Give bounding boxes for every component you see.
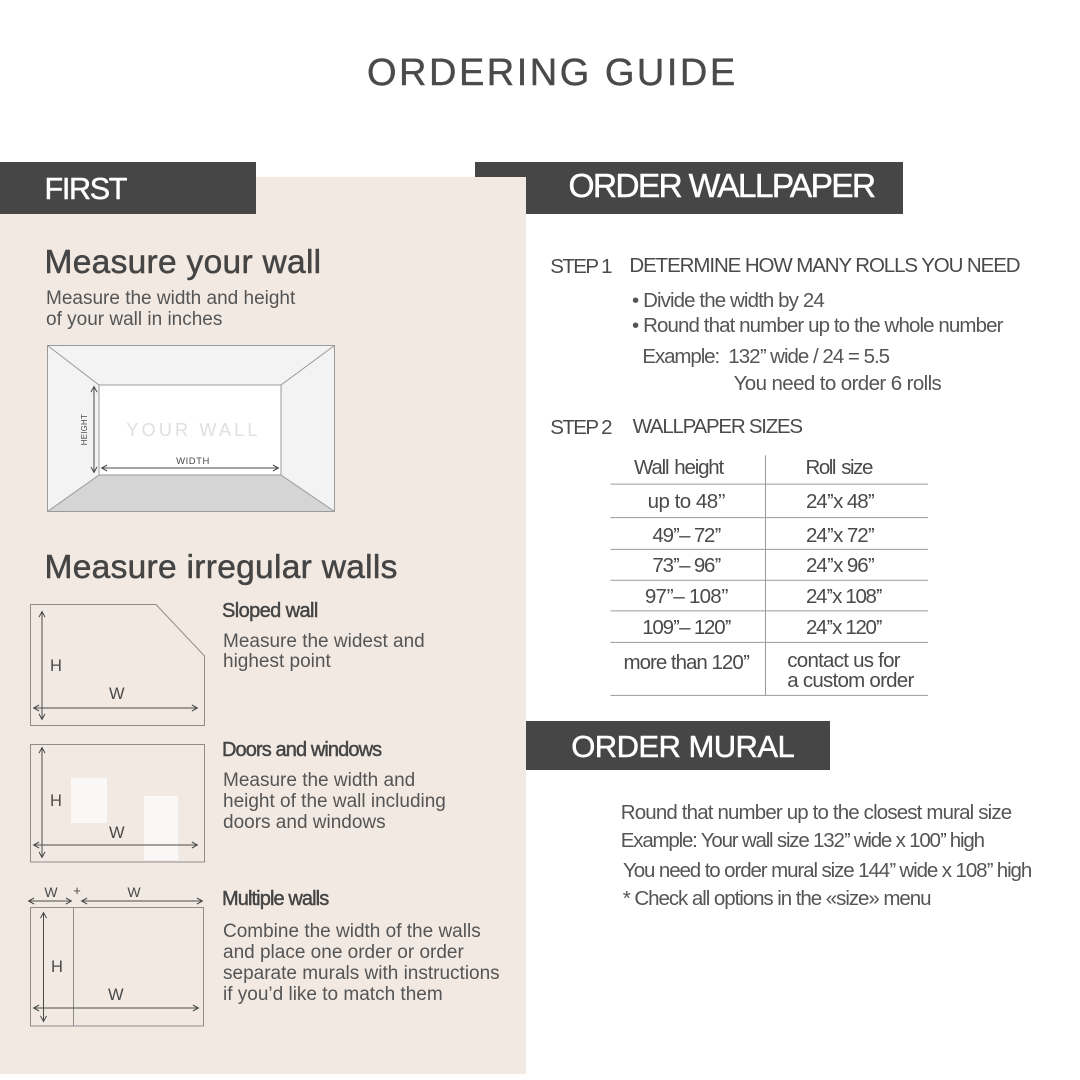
- svg-text:+: +: [73, 883, 81, 898]
- svg-text:W: W: [108, 986, 124, 1004]
- svg-text:YOUR WALL: YOUR WALL: [126, 420, 260, 440]
- svg-text:W: W: [44, 884, 58, 900]
- svg-text:W: W: [127, 884, 141, 900]
- svg-text:H: H: [50, 792, 62, 810]
- svg-text:H: H: [51, 958, 63, 976]
- svg-text:HEIGHT: HEIGHT: [80, 414, 89, 445]
- svg-text:W: W: [109, 685, 125, 703]
- svg-text:H: H: [50, 657, 62, 675]
- svg-text:W: W: [109, 824, 125, 842]
- svg-text:WIDTH: WIDTH: [176, 456, 210, 467]
